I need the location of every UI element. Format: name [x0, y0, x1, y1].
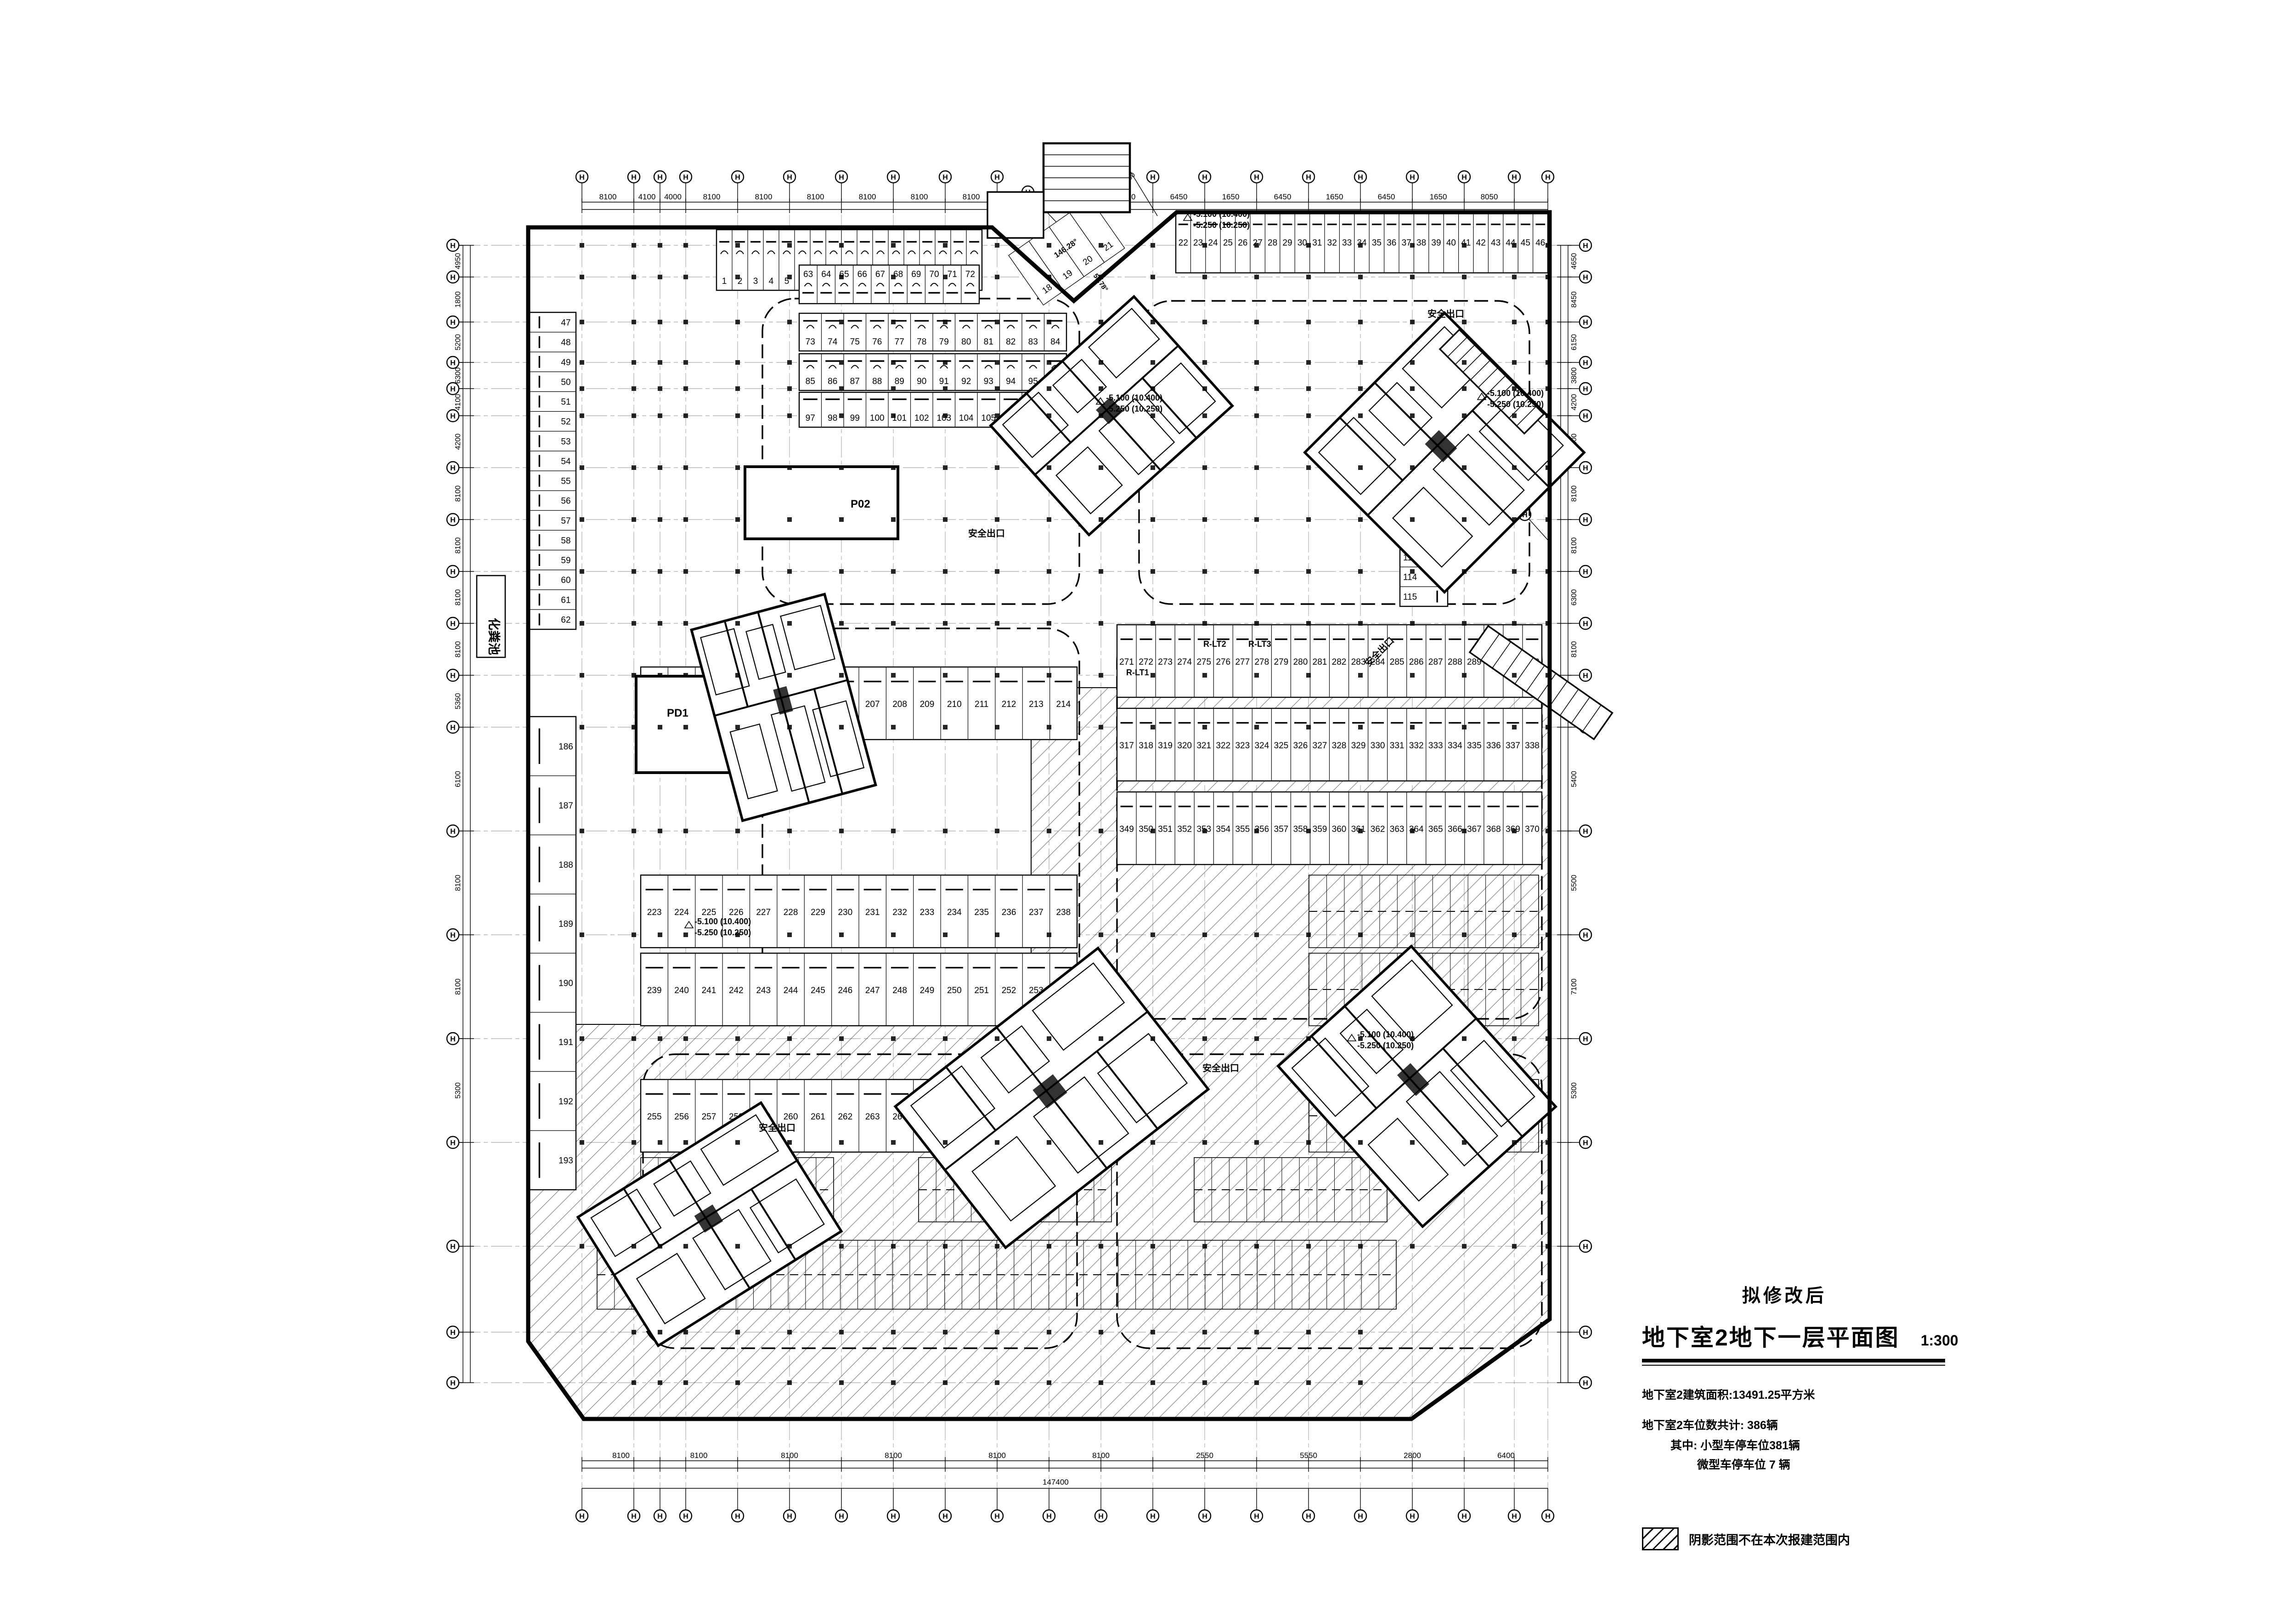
svg-text:H: H: [1583, 1243, 1588, 1251]
svg-text:H: H: [1046, 1513, 1052, 1520]
svg-text:75: 75: [850, 337, 860, 347]
svg-text:104: 104: [959, 413, 974, 423]
svg-text:239: 239: [647, 986, 662, 995]
svg-text:R-LT1: R-LT1: [1126, 668, 1149, 677]
svg-text:H: H: [450, 1379, 456, 1387]
svg-text:H: H: [1583, 620, 1588, 628]
svg-text:115: 115: [1403, 593, 1417, 602]
svg-text:186: 186: [558, 742, 573, 752]
svg-text:H: H: [1583, 319, 1588, 327]
svg-text:8100: 8100: [988, 1451, 1006, 1460]
svg-text:47: 47: [561, 318, 570, 328]
svg-text:327: 327: [1313, 741, 1327, 751]
svg-text:23: 23: [1193, 238, 1203, 248]
svg-text:331: 331: [1390, 741, 1405, 751]
svg-text:25: 25: [1223, 238, 1233, 248]
svg-text:229: 229: [811, 908, 825, 917]
svg-text:8100: 8100: [781, 1451, 798, 1460]
svg-text:H: H: [657, 1513, 663, 1520]
svg-text:211: 211: [975, 700, 988, 709]
svg-text:4100: 4100: [638, 192, 656, 201]
svg-text:276: 276: [1216, 657, 1230, 667]
svg-text:100: 100: [870, 413, 885, 423]
svg-text:226: 226: [729, 908, 744, 917]
svg-text:228: 228: [784, 908, 798, 917]
svg-text:240: 240: [674, 986, 689, 995]
svg-text:78: 78: [917, 337, 926, 347]
drawing-sheet: 8100410040008100810081008100810081009007…: [0, 0, 2296, 1622]
svg-text:H: H: [1150, 174, 1156, 181]
svg-text:37: 37: [1402, 238, 1411, 248]
svg-text:8100: 8100: [963, 192, 980, 201]
svg-text:86: 86: [828, 377, 837, 386]
svg-text:39: 39: [1431, 238, 1441, 248]
svg-text:H: H: [1202, 1513, 1207, 1520]
svg-text:4950: 4950: [454, 253, 462, 270]
svg-text:4: 4: [769, 277, 774, 286]
svg-text:6450: 6450: [1170, 192, 1188, 201]
svg-text:H: H: [579, 1513, 585, 1520]
svg-text:114: 114: [1403, 573, 1417, 582]
svg-text:8050: 8050: [1481, 192, 1498, 201]
svg-text:360: 360: [1332, 825, 1347, 834]
svg-text:99: 99: [850, 413, 860, 423]
svg-text:H: H: [450, 1329, 456, 1337]
svg-text:72: 72: [965, 270, 975, 279]
svg-text:337: 337: [1506, 741, 1520, 751]
svg-text:56: 56: [561, 497, 570, 506]
svg-text:H: H: [994, 1513, 1000, 1520]
parking-stall-row: 186187188189190191192193: [529, 717, 576, 1190]
svg-text:64: 64: [821, 270, 831, 279]
svg-text:242: 242: [729, 986, 744, 995]
svg-text:332: 332: [1409, 741, 1424, 751]
svg-text:91: 91: [939, 377, 949, 386]
svg-text:H: H: [1150, 1513, 1156, 1520]
svg-text:249: 249: [920, 986, 935, 995]
svg-text:H: H: [1461, 174, 1467, 181]
svg-text:79: 79: [939, 337, 949, 347]
svg-text:H: H: [891, 174, 896, 181]
svg-text:57: 57: [561, 516, 570, 526]
svg-text:48: 48: [561, 338, 570, 348]
svg-text:362: 362: [1371, 825, 1385, 834]
svg-text:63: 63: [803, 270, 813, 279]
svg-text:208: 208: [892, 700, 907, 709]
svg-text:320: 320: [1177, 741, 1192, 751]
parking-stall-row: 47484950515253545556575859606162: [529, 312, 576, 629]
svg-text:安全出口: 安全出口: [968, 528, 1005, 539]
svg-text:H: H: [891, 1513, 896, 1520]
svg-text:326: 326: [1293, 741, 1308, 751]
svg-text:8100: 8100: [703, 192, 721, 201]
svg-text:359: 359: [1313, 825, 1327, 834]
svg-text:4200: 4200: [1570, 394, 1578, 411]
svg-text:H: H: [1583, 1329, 1588, 1337]
svg-text:84: 84: [1050, 337, 1061, 347]
svg-text:8100: 8100: [690, 1451, 708, 1460]
svg-text:8100: 8100: [599, 192, 617, 201]
parking-stall-row: 3173183193203213223233243253263273283293…: [1117, 708, 1542, 781]
svg-text:-5.100 (10.400): -5.100 (10.400): [1193, 209, 1250, 219]
parking-total-note: 地下室2车位数共计: 386辆: [1642, 1416, 1963, 1433]
svg-text:351: 351: [1158, 825, 1173, 834]
svg-text:273: 273: [1158, 657, 1173, 667]
svg-text:278: 278: [1254, 657, 1269, 667]
svg-text:213: 213: [1029, 700, 1044, 709]
svg-text:6100: 6100: [454, 771, 462, 787]
parking-detail-note-2: 微型车停车位 7 辆: [1642, 1456, 1963, 1472]
svg-text:H: H: [1583, 385, 1588, 393]
svg-text:261: 261: [811, 1112, 825, 1122]
svg-text:85: 85: [806, 377, 815, 386]
svg-text:H: H: [1306, 174, 1311, 181]
svg-text:H: H: [1512, 1513, 1517, 1520]
svg-text:H: H: [994, 174, 1000, 181]
svg-text:317: 317: [1119, 741, 1134, 751]
svg-text:8100: 8100: [454, 875, 462, 891]
svg-text:71: 71: [948, 270, 957, 279]
svg-text:-5.100 (10.400): -5.100 (10.400): [1357, 1030, 1414, 1039]
svg-text:238: 238: [1056, 908, 1071, 917]
svg-text:H: H: [787, 174, 792, 181]
svg-text:40: 40: [1446, 238, 1456, 248]
svg-text:1650: 1650: [1326, 192, 1343, 201]
svg-text:46: 46: [1535, 238, 1545, 248]
hatch-legend-text: 阴影范围不在本次报建范围内: [1689, 1530, 1850, 1548]
svg-text:8100: 8100: [911, 192, 928, 201]
svg-text:319: 319: [1158, 741, 1173, 751]
svg-text:H: H: [657, 174, 663, 181]
svg-text:H: H: [1583, 1035, 1588, 1043]
svg-text:-5.100 (10.400): -5.100 (10.400): [1487, 389, 1544, 398]
svg-text:H: H: [1202, 174, 1207, 181]
svg-text:367: 367: [1467, 825, 1482, 834]
svg-text:43: 43: [1491, 238, 1501, 248]
svg-text:189: 189: [558, 920, 573, 929]
svg-text:H: H: [450, 385, 456, 393]
svg-text:H: H: [735, 174, 740, 181]
svg-text:1650: 1650: [1222, 192, 1240, 201]
svg-text:357: 357: [1274, 825, 1289, 834]
svg-text:8100: 8100: [807, 192, 824, 201]
svg-text:H: H: [1583, 672, 1588, 680]
svg-text:282: 282: [1332, 657, 1347, 667]
svg-text:1650: 1650: [1430, 192, 1447, 201]
svg-text:51: 51: [561, 397, 570, 407]
svg-text:H: H: [683, 174, 688, 181]
svg-text:6450: 6450: [1274, 192, 1292, 201]
svg-text:237: 237: [1029, 908, 1044, 917]
svg-text:6300: 6300: [454, 367, 462, 384]
svg-text:251: 251: [974, 986, 989, 995]
svg-text:5500: 5500: [1570, 875, 1578, 891]
svg-text:234: 234: [947, 908, 962, 917]
svg-text:271: 271: [1119, 657, 1134, 667]
svg-text:H: H: [787, 1513, 792, 1520]
svg-text:244: 244: [784, 986, 798, 995]
svg-text:235: 235: [974, 908, 989, 917]
svg-text:232: 232: [892, 908, 907, 917]
svg-text:73: 73: [806, 337, 815, 347]
svg-text:358: 358: [1293, 825, 1308, 834]
svg-text:安全出口: 安全出口: [1202, 1062, 1239, 1074]
area-note: 地下室2建筑面积:13491.25平方米: [1642, 1386, 1963, 1402]
svg-text:H: H: [1583, 1139, 1588, 1147]
svg-text:1800: 1800: [454, 291, 462, 308]
svg-text:207: 207: [865, 700, 880, 709]
svg-text:92: 92: [961, 377, 971, 386]
svg-text:272: 272: [1139, 657, 1153, 667]
svg-text:329: 329: [1351, 741, 1366, 751]
svg-text:5300: 5300: [1570, 1082, 1578, 1099]
svg-text:H: H: [1583, 516, 1588, 524]
svg-text:H: H: [839, 1513, 844, 1520]
svg-text:6450: 6450: [1378, 192, 1395, 201]
svg-text:98: 98: [828, 413, 837, 423]
svg-text:-5.100 (10.400): -5.100 (10.400): [1106, 393, 1162, 402]
svg-text:260: 260: [784, 1112, 798, 1122]
drawing-title: 地下室2地下一层平面图: [1642, 1319, 1900, 1352]
svg-text:H: H: [1410, 174, 1415, 181]
svg-text:8100: 8100: [454, 589, 462, 606]
svg-text:35: 35: [1372, 238, 1382, 248]
svg-text:36: 36: [1387, 238, 1396, 248]
svg-text:R-LT3: R-LT3: [1248, 639, 1271, 649]
svg-text:8100: 8100: [1570, 537, 1578, 554]
svg-text:355: 355: [1235, 825, 1250, 834]
svg-text:330: 330: [1371, 741, 1385, 751]
svg-text:2550: 2550: [1196, 1451, 1213, 1460]
svg-text:250: 250: [947, 986, 962, 995]
svg-text:H: H: [1583, 359, 1588, 367]
svg-text:H: H: [450, 1139, 456, 1147]
svg-text:-5.250 (10.250): -5.250 (10.250): [1106, 404, 1162, 413]
svg-text:52: 52: [561, 417, 570, 427]
svg-text:-5.250 (10.250): -5.250 (10.250): [694, 928, 751, 937]
svg-text:化粪池: 化粪池: [487, 618, 501, 655]
svg-text:287: 287: [1428, 657, 1443, 667]
svg-text:8100: 8100: [454, 486, 462, 502]
svg-text:H: H: [450, 828, 456, 836]
parking-stall-row: 858687888990919293949596: [799, 354, 1066, 390]
svg-text:33: 33: [1342, 238, 1352, 248]
svg-text:8100: 8100: [454, 641, 462, 658]
svg-text:4000: 4000: [664, 192, 682, 201]
svg-text:H: H: [1583, 828, 1588, 836]
svg-text:97: 97: [806, 413, 815, 423]
svg-text:193: 193: [558, 1156, 573, 1166]
svg-text:192: 192: [558, 1097, 573, 1107]
svg-text:333: 333: [1428, 741, 1443, 751]
title-block: 拟修改后 地下室2地下一层平面图 1:300 地下室2建筑面积:13491.25…: [1642, 1281, 1963, 1550]
svg-text:210: 210: [947, 700, 962, 709]
svg-text:280: 280: [1293, 657, 1308, 667]
svg-text:227: 227: [756, 908, 771, 917]
svg-text:80: 80: [961, 337, 971, 347]
svg-text:256: 256: [674, 1112, 689, 1122]
svg-text:274: 274: [1177, 657, 1192, 667]
svg-text:H: H: [1583, 464, 1588, 472]
svg-text:PD1: PD1: [667, 707, 688, 719]
svg-text:279: 279: [1274, 657, 1289, 667]
parking-stall-row: 2712722732742752762772782792802812822832…: [1117, 625, 1542, 697]
svg-text:248: 248: [892, 986, 907, 995]
svg-text:H: H: [839, 174, 844, 181]
svg-text:334: 334: [1448, 741, 1462, 751]
svg-text:2800: 2800: [1404, 1451, 1421, 1460]
svg-text:322: 322: [1216, 741, 1230, 751]
svg-text:8100: 8100: [885, 1451, 902, 1460]
svg-text:89: 89: [895, 377, 904, 386]
revision-status-label: 拟修改后: [1642, 1281, 1927, 1307]
svg-text:7100: 7100: [1570, 978, 1578, 995]
svg-text:H: H: [631, 174, 637, 181]
svg-text:29: 29: [1282, 238, 1292, 248]
svg-text:365: 365: [1428, 825, 1443, 834]
svg-text:255: 255: [647, 1112, 662, 1122]
svg-text:3800: 3800: [1570, 367, 1578, 384]
svg-text:H: H: [1583, 568, 1588, 576]
svg-text:8100: 8100: [859, 192, 876, 201]
svg-text:H: H: [1306, 1513, 1311, 1520]
svg-text:H: H: [450, 516, 456, 524]
svg-text:6400: 6400: [1497, 1451, 1515, 1460]
svg-text:H: H: [631, 1513, 637, 1520]
svg-text:H: H: [1583, 242, 1588, 250]
svg-text:77: 77: [895, 337, 904, 347]
svg-text:H: H: [1583, 274, 1588, 282]
svg-text:277: 277: [1235, 657, 1250, 667]
svg-text:8100: 8100: [755, 192, 773, 201]
svg-text:286: 286: [1409, 657, 1424, 667]
svg-text:H: H: [450, 620, 456, 628]
title-underline-thin: [1642, 1365, 1945, 1366]
svg-text:94: 94: [1006, 377, 1016, 386]
svg-text:338: 338: [1525, 741, 1540, 751]
svg-text:368: 368: [1486, 825, 1501, 834]
svg-text:236: 236: [1002, 908, 1016, 917]
svg-text:5300: 5300: [454, 1082, 462, 1099]
svg-text:191: 191: [558, 1038, 573, 1047]
svg-text:4650: 4650: [1570, 253, 1578, 270]
parking-stall-row: 63646566676869707172: [799, 265, 979, 304]
svg-text:H: H: [1583, 932, 1588, 939]
svg-text:281: 281: [1313, 657, 1327, 667]
svg-text:67: 67: [875, 270, 885, 279]
svg-text:-5.250 (10.250): -5.250 (10.250): [1487, 400, 1544, 409]
svg-text:H: H: [1254, 1513, 1259, 1520]
svg-text:H: H: [942, 174, 948, 181]
svg-text:H: H: [1545, 174, 1551, 181]
svg-text:8450: 8450: [1570, 291, 1578, 308]
svg-text:70: 70: [929, 270, 939, 279]
svg-text:H: H: [450, 464, 456, 472]
hatch-legend-swatch: [1642, 1527, 1679, 1550]
svg-text:241: 241: [702, 986, 716, 995]
svg-text:8100: 8100: [454, 537, 462, 554]
parking-detail-note-1: 其中: 小型车停车位381辆: [1642, 1436, 1963, 1453]
svg-text:58: 58: [561, 536, 570, 546]
svg-text:4200: 4200: [454, 434, 462, 450]
title-underline-thick: [1642, 1359, 1945, 1362]
svg-text:325: 325: [1274, 741, 1289, 751]
svg-text:190: 190: [558, 978, 573, 988]
svg-text:59: 59: [561, 556, 570, 565]
svg-text:42: 42: [1476, 238, 1486, 248]
svg-text:187: 187: [558, 801, 573, 811]
svg-text:H: H: [1461, 1513, 1467, 1520]
svg-text:5360: 5360: [454, 693, 462, 710]
legend-row: 阴影范围不在本次报建范围内: [1642, 1527, 1963, 1550]
svg-text:24: 24: [1208, 238, 1218, 248]
svg-text:83: 83: [1028, 337, 1038, 347]
svg-text:22: 22: [1179, 238, 1188, 248]
svg-text:H: H: [1512, 174, 1517, 181]
svg-text:231: 231: [865, 908, 880, 917]
svg-text:214: 214: [1056, 700, 1071, 709]
svg-text:R-LT2: R-LT2: [1203, 639, 1226, 649]
svg-text:82: 82: [1006, 337, 1015, 347]
svg-text:209: 209: [920, 700, 935, 709]
svg-text:H: H: [735, 1513, 740, 1520]
svg-text:26: 26: [1238, 238, 1247, 248]
svg-text:60: 60: [561, 576, 570, 585]
svg-text:5200: 5200: [454, 334, 462, 350]
svg-text:61: 61: [561, 595, 570, 605]
svg-text:H: H: [1358, 1513, 1363, 1520]
svg-text:74: 74: [828, 337, 838, 347]
svg-text:安全出口: 安全出口: [759, 1122, 795, 1133]
svg-text:安全出口: 安全出口: [1427, 308, 1464, 319]
svg-text:352: 352: [1177, 825, 1192, 834]
svg-text:H: H: [942, 1513, 948, 1520]
svg-text:-5.250 (10.250): -5.250 (10.250): [1357, 1041, 1414, 1050]
svg-text:275: 275: [1196, 657, 1211, 667]
svg-text:H: H: [450, 413, 456, 420]
svg-text:87: 87: [850, 377, 860, 386]
svg-text:H: H: [1545, 1513, 1551, 1520]
svg-text:90: 90: [917, 377, 926, 386]
svg-text:336: 336: [1486, 741, 1501, 751]
svg-text:262: 262: [838, 1112, 852, 1122]
svg-text:28: 28: [1268, 238, 1277, 248]
svg-text:P02: P02: [851, 498, 870, 510]
svg-text:324: 324: [1254, 741, 1269, 751]
svg-text:354: 354: [1216, 825, 1230, 834]
svg-text:363: 363: [1390, 825, 1405, 834]
svg-text:76: 76: [872, 337, 882, 347]
svg-text:H: H: [450, 1243, 456, 1251]
svg-text:-5.250 (10.250): -5.250 (10.250): [1193, 220, 1250, 230]
svg-text:93: 93: [984, 377, 993, 386]
svg-text:45: 45: [1521, 238, 1530, 248]
svg-text:H: H: [683, 1513, 688, 1520]
svg-text:62: 62: [561, 615, 570, 625]
svg-text:225: 225: [702, 908, 716, 917]
svg-text:4100: 4100: [454, 394, 462, 411]
svg-text:55: 55: [561, 477, 570, 486]
svg-text:H: H: [450, 242, 456, 250]
svg-text:5400: 5400: [1570, 771, 1578, 787]
svg-text:8100: 8100: [612, 1451, 630, 1460]
svg-text:285: 285: [1390, 657, 1405, 667]
svg-text:263: 263: [865, 1112, 880, 1122]
parking-stall-row: 737475767778798081828384: [799, 313, 1066, 351]
svg-text:224: 224: [674, 908, 689, 917]
svg-text:288: 288: [1448, 657, 1462, 667]
svg-text:H: H: [1583, 413, 1588, 420]
